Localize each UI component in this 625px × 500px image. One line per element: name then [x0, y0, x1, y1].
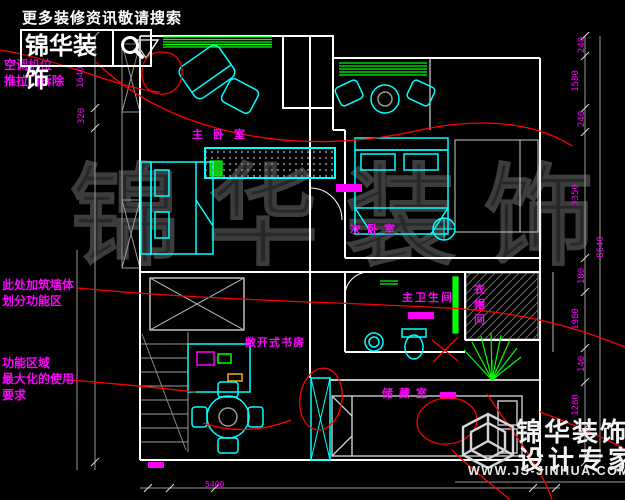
search-icon	[114, 31, 150, 65]
dim-right-1980: 1980	[571, 308, 581, 330]
annotation-requirement: 要求	[2, 388, 26, 403]
room-label-master-bath: 主卫生间	[402, 289, 454, 305]
dim-right-total-8640: 8640	[596, 236, 606, 258]
room-label-storage: 储藏室	[382, 385, 433, 401]
dim-right-1580: 1580	[571, 70, 581, 92]
dim-left-320: 320	[77, 108, 87, 124]
room-label-open-study: 敞开式书房	[245, 334, 305, 350]
room-label-second-bedroom: 次卧室	[350, 221, 401, 237]
brand-logo-box: 锦华装饰	[20, 29, 152, 67]
room-label-master-bedroom: 主卧室	[192, 126, 255, 142]
annotation-function-zone: 功能区域	[2, 356, 50, 371]
annotation-add-wall: 此处加筑墙体	[2, 278, 74, 293]
dim-right-240a: 240	[577, 37, 587, 53]
brand-cube-logo	[458, 410, 518, 472]
magenta-markers	[148, 184, 456, 468]
cad-floor-plan: 锦华装饰	[0, 0, 625, 500]
dim-right-240b: 240	[577, 111, 587, 127]
dim-right-140: 140	[577, 356, 587, 372]
brand-website: WWW.JS-JINHUA.COM	[468, 464, 625, 478]
annotation-divide-zone: 划分功能区	[2, 294, 62, 309]
room-label-cloakroom: 衣帽间	[474, 283, 487, 328]
dim-right-180: 180	[577, 268, 587, 284]
header-tagline: 更多装修资讯敬请搜索	[22, 7, 182, 28]
dim-bottom-5400: 5400	[205, 480, 224, 489]
dim-left-1640: 1640	[76, 66, 86, 88]
dim-right-3350: 3350	[571, 184, 581, 206]
annotation-maximize-use: 最大化的使用	[2, 372, 74, 387]
brand-logo-text: 锦华装饰	[22, 31, 112, 65]
